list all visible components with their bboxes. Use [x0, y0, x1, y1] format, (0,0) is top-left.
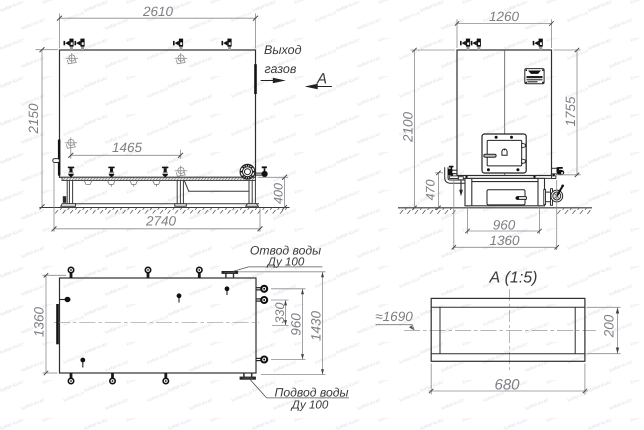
svg-text:1360: 1360 [32, 306, 47, 337]
svg-text:1430: 1430 [309, 310, 324, 341]
svg-text:Выход: Выход [264, 43, 302, 57]
svg-text:А (1:5): А (1:5) [488, 270, 537, 287]
svg-text:газов: газов [265, 62, 297, 76]
svg-text:2610: 2610 [142, 4, 174, 19]
svg-text:1260: 1260 [489, 9, 520, 24]
svg-text:200: 200 [602, 314, 617, 338]
svg-text:≈1690: ≈1690 [375, 309, 413, 324]
svg-text:960: 960 [288, 313, 303, 336]
svg-text:Подвод воды: Подвод воды [275, 385, 349, 399]
svg-text:2100: 2100 [400, 111, 415, 143]
svg-text:Ду 100: Ду 100 [290, 399, 329, 412]
svg-text:2740: 2740 [145, 214, 177, 229]
svg-text:А: А [316, 71, 327, 88]
svg-text:960: 960 [493, 218, 516, 233]
svg-text:470: 470 [424, 180, 438, 201]
svg-text:1360: 1360 [489, 233, 520, 248]
svg-text:400: 400 [271, 183, 285, 204]
svg-text:1755: 1755 [563, 96, 578, 127]
svg-text:1465: 1465 [112, 140, 143, 155]
svg-text:680: 680 [494, 377, 520, 394]
svg-text:330: 330 [273, 303, 287, 324]
svg-text:2150: 2150 [26, 103, 41, 135]
svg-text:Ду 100: Ду 100 [266, 255, 305, 268]
